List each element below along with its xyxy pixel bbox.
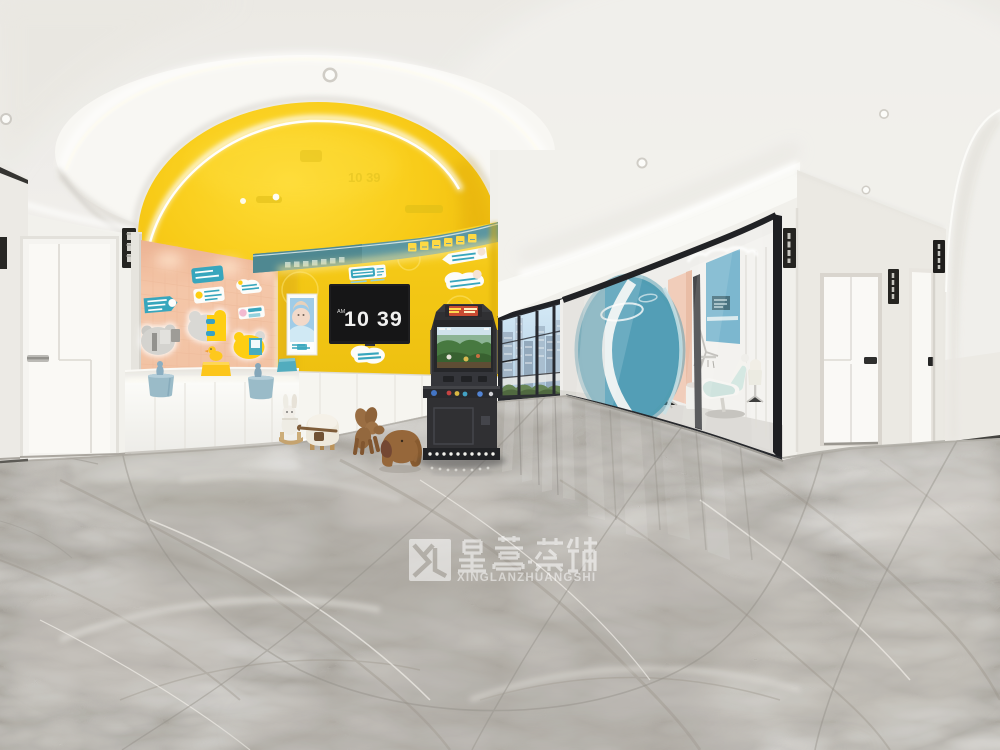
svg-text:XINGLANZHUANGSHI: XINGLANZHUANGSHI bbox=[457, 572, 596, 584]
